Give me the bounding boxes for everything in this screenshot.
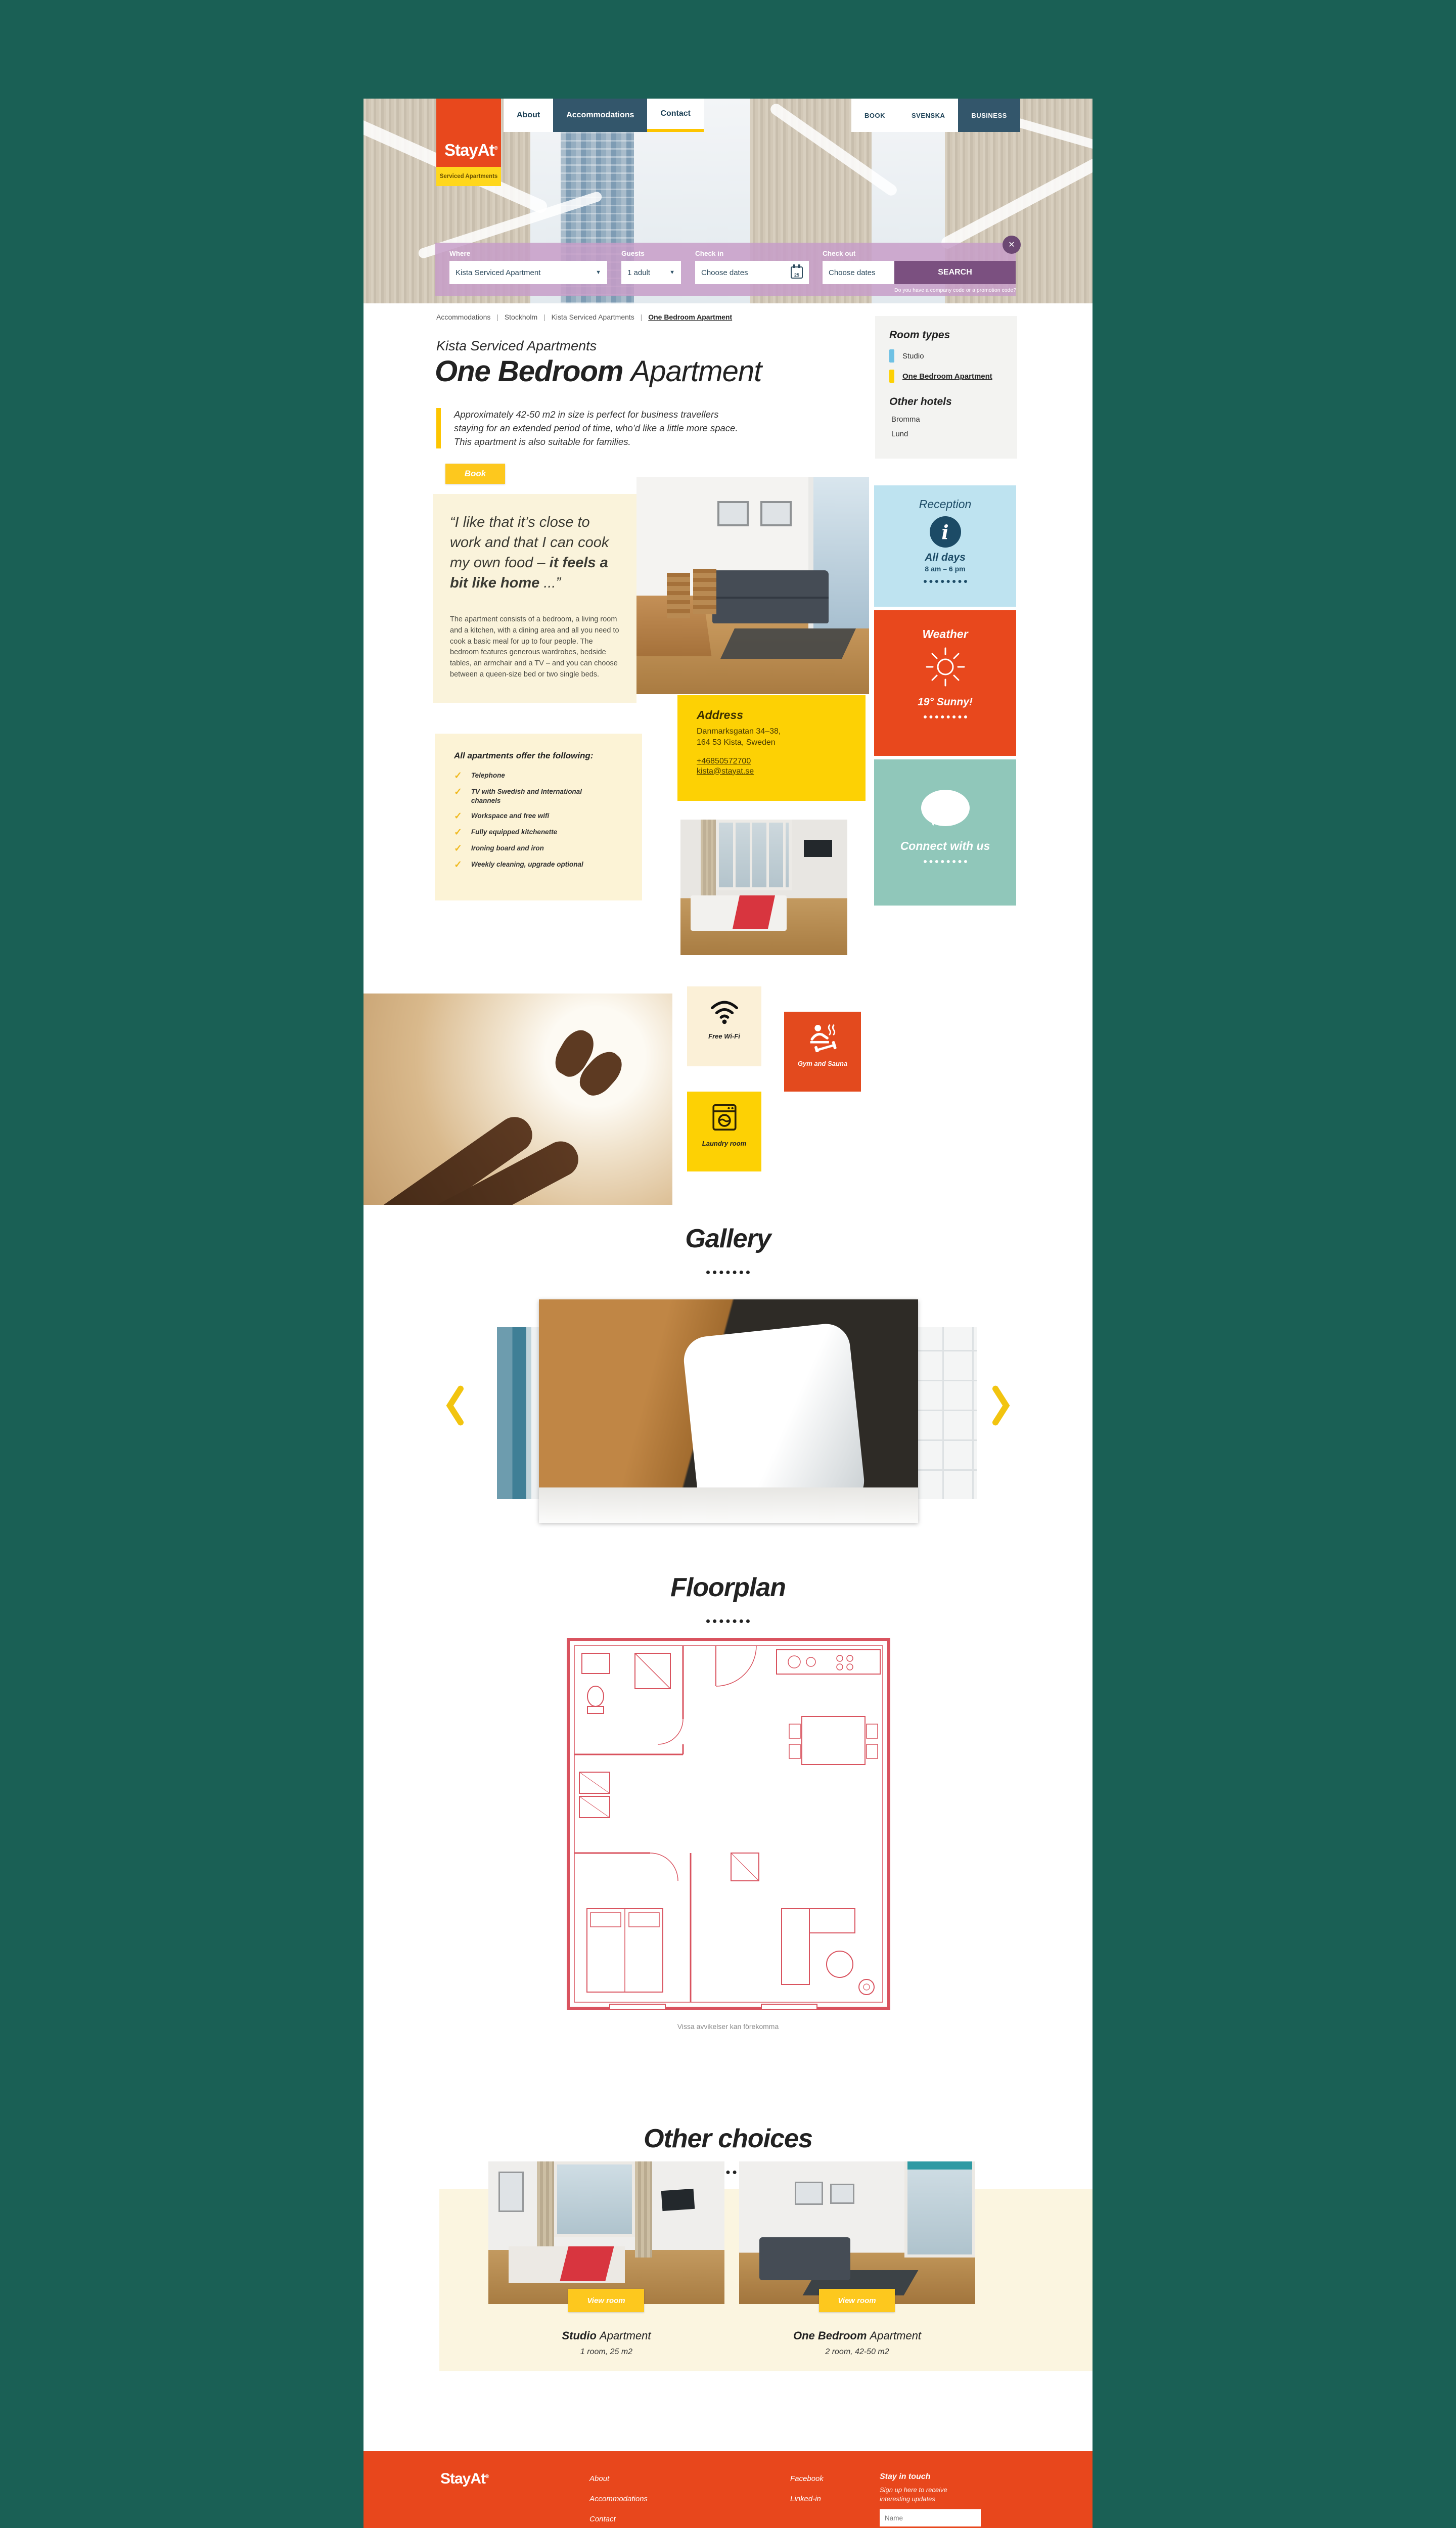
nav-tab-book[interactable]: BOOK	[851, 99, 898, 132]
footer-link-accommodations[interactable]: Accommodations	[589, 2495, 648, 2503]
room-types-panel: Room types Studio One Bedroom Apartment …	[875, 316, 1017, 459]
breadcrumb-separator: |	[641, 313, 643, 321]
guests-label: Guests	[621, 250, 645, 257]
stay-in-touch-heading: Stay in touch	[880, 2472, 986, 2481]
one-bedroom-marker-icon	[889, 370, 894, 383]
checkin-placeholder: Choose dates	[701, 268, 748, 277]
where-value: Kista Serviced Apartment	[456, 268, 540, 277]
footer: StayAt® About Accommodations Contact Boo…	[363, 2451, 1093, 2528]
window	[554, 2161, 635, 2237]
curtain	[701, 820, 716, 895]
carousel-next-icon[interactable]	[990, 1385, 1013, 1426]
amenities-checklist: All apartments offer the following: ✓Tel…	[435, 734, 642, 900]
logo[interactable]: StayAt®	[436, 99, 501, 167]
check-icon: ✓	[454, 787, 462, 805]
studio-card-info: 1 room, 25 m2	[488, 2348, 724, 2357]
tv	[804, 840, 832, 857]
studio-marker-icon	[889, 349, 894, 363]
bed-sheet	[539, 1487, 918, 1523]
hotel-kicker: Kista Serviced Apartments	[436, 338, 597, 354]
red-throw	[733, 895, 775, 929]
curtain	[635, 2161, 652, 2258]
email-link[interactable]: kista@stayat.se	[697, 767, 846, 776]
dotted-divider	[706, 1271, 750, 1274]
footer-link-about[interactable]: About	[589, 2474, 648, 2483]
checklist-item: ✓Ironing board and iron	[454, 844, 623, 853]
weather-status: 19° Sunny!	[874, 696, 1016, 708]
checklist-item: ✓Weekly cleaning, upgrade optional	[454, 860, 623, 870]
wall-art	[830, 2184, 854, 2204]
check-icon: ✓	[454, 844, 462, 853]
gym-label: Gym and Sauna	[784, 1060, 861, 1067]
sidebar-item-label: One Bedroom Apartment	[902, 372, 992, 381]
promo-code-link[interactable]: Do you have a company code or a promotio…	[894, 287, 1026, 293]
breadcrumb-separator: |	[543, 313, 545, 321]
sidebar-item-one-bedroom[interactable]: One Bedroom Apartment	[889, 370, 1003, 383]
sidebar-item-label: Studio	[902, 352, 924, 360]
chair	[693, 569, 716, 614]
stay-in-touch-sub: Sign up here to receive interesting upda…	[880, 2486, 968, 2503]
book-button[interactable]: Book	[445, 464, 505, 484]
relaxing-feet-photo	[363, 994, 672, 1205]
footer-link-linkedin[interactable]: Linked-in	[790, 2495, 824, 2503]
connect-title: Connect with us	[874, 839, 1016, 853]
tv	[661, 2189, 695, 2211]
laundry-label: Laundry room	[687, 1140, 761, 1147]
red-throw	[560, 2246, 614, 2281]
checklist-label: Weekly cleaning, upgrade optional	[471, 860, 583, 870]
testimonial-block: “I like that it’s close to work and that…	[433, 494, 636, 703]
other-choices-heading: Other choices	[363, 2124, 1093, 2154]
checklist-item: ✓TV with Swedish and International chann…	[454, 787, 623, 805]
chair	[667, 573, 690, 618]
sofa	[759, 2237, 850, 2280]
connect-card[interactable]: Connect with us	[874, 759, 1016, 906]
breadcrumb-current: One Bedroom Apartment	[648, 313, 732, 321]
newsletter-signup: Stay in touch Sign up here to receive in…	[880, 2472, 986, 2528]
address-card: Address Danmarksgatan 34–38, 164 53 Kist…	[677, 695, 866, 801]
sofa	[712, 570, 829, 623]
name-field[interactable]	[880, 2509, 981, 2526]
desktop-background: StayAt® Serviced Apartments About Accomm…	[0, 0, 1456, 2528]
gallery-heading: Gallery	[363, 1224, 1093, 1254]
room-types-heading: Room types	[889, 329, 1003, 341]
breadcrumb-kista[interactable]: Kista Serviced Apartments	[552, 313, 634, 321]
window-blind	[907, 2161, 972, 2170]
studio-card-title: Studio Apartment	[488, 2329, 724, 2342]
floorplan-heading: Floorplan	[363, 1572, 1093, 1603]
gym-sauna-card: Gym and Sauna	[784, 1012, 861, 1092]
calendar-icon: 25	[791, 266, 803, 279]
floorplan-drawing	[564, 1636, 893, 2012]
nav-tab-accommodations[interactable]: Accommodations	[553, 99, 647, 132]
close-icon[interactable]: ✕	[1003, 236, 1021, 254]
apartment-description: The apartment consists of a bedroom, a l…	[450, 614, 619, 681]
checklist-label: Telephone	[471, 771, 505, 781]
where-select[interactable]: Kista Serviced Apartment ▼	[449, 261, 607, 284]
mirror	[498, 2172, 524, 2212]
checklist-label: Ironing board and iron	[471, 844, 544, 853]
main-nav: About Accommodations Contact	[504, 99, 704, 132]
dotted-divider	[924, 580, 967, 583]
sidebar-item-studio[interactable]: Studio	[889, 349, 1003, 363]
footer-social: Facebook Linked-in	[790, 2474, 824, 2503]
dotted-divider	[706, 1619, 750, 1623]
one-bedroom-card-info: 2 room, 42-50 m2	[739, 2348, 975, 2357]
view-room-button-studio[interactable]: View room	[568, 2289, 644, 2312]
sidebar-item-lund[interactable]: Lund	[889, 430, 1003, 438]
wall-art	[795, 2182, 823, 2205]
reception-hours: 8 am – 6 pm	[874, 565, 1016, 573]
checklist-item: ✓Fully equipped kitchenette	[454, 828, 623, 837]
footer-logo[interactable]: StayAt®	[440, 2470, 488, 2488]
one-bedroom-apartment-photo[interactable]	[739, 2161, 975, 2304]
breadcrumb-accommodations[interactable]: Accommodations	[436, 313, 490, 321]
address-links: +46850572700 kista@stayat.se	[697, 757, 846, 776]
checkin-field[interactable]: Choose dates 25	[695, 261, 809, 284]
wifi-icon	[708, 998, 741, 1025]
rug	[720, 628, 856, 659]
checkin-label: Check in	[695, 250, 723, 257]
registered-mark: ®	[494, 146, 497, 151]
checklist-item: ✓Telephone	[454, 771, 623, 781]
sidebar-item-bromma[interactable]: Bromma	[889, 415, 1003, 424]
testimonial-quote: “I like that it’s close to work and that…	[450, 512, 619, 593]
reception-card: Reception i All days 8 am – 6 pm	[874, 485, 1016, 607]
gym-sauna-icon	[807, 1023, 838, 1052]
wall-art	[760, 501, 792, 526]
page-title: One Bedroom Apartment	[435, 354, 761, 388]
check-icon: ✓	[454, 860, 462, 870]
studio-apartment-photo[interactable]	[488, 2161, 724, 2304]
check-icon: ✓	[454, 828, 462, 837]
wifi-label: Free Wi-Fi	[687, 1032, 761, 1040]
floorplan-caption: Vissa avvikelser kan förekomma	[363, 2022, 1093, 2030]
weather-title: Weather	[874, 627, 1016, 641]
carousel-prev-icon[interactable]	[443, 1385, 466, 1426]
address-street: Danmarksgatan 34–38,	[697, 726, 846, 737]
gallery-main-image[interactable]	[539, 1299, 918, 1523]
check-icon: ✓	[454, 811, 462, 821]
check-icon: ✓	[454, 771, 462, 781]
guests-value: 1 adult	[627, 268, 650, 277]
title-bold: One Bedroom	[435, 355, 623, 388]
curtain	[537, 2161, 554, 2258]
checklist-label: Workspace and free wifi	[471, 811, 549, 821]
free-wifi-card: Free Wi-Fi	[687, 986, 761, 1066]
weather-card: Weather 19° Sunny!	[874, 610, 1016, 756]
chevron-down-icon: ▼	[596, 269, 601, 276]
phone-link[interactable]: +46850572700	[697, 757, 846, 766]
footer-link-contact[interactable]: Contact	[589, 2515, 648, 2523]
registered-mark: ®	[485, 2474, 488, 2479]
reception-title: Reception	[874, 498, 1016, 511]
checklist-item: ✓Workspace and free wifi	[454, 811, 623, 821]
other-hotels-heading: Other hotels	[889, 396, 1003, 408]
chevron-down-icon: ▼	[669, 269, 675, 276]
speech-bubble-icon	[921, 790, 970, 826]
address-heading: Address	[697, 708, 846, 722]
where-label: Where	[449, 250, 470, 257]
checkout-placeholder: Choose dates	[829, 268, 876, 277]
checklist-label: Fully equipped kitchenette	[471, 828, 557, 837]
window	[716, 820, 792, 890]
info-icon: i	[930, 516, 961, 548]
logo-tagline: Serviced Apartments	[436, 167, 501, 186]
nav-tab-svenska[interactable]: SVENSKA	[898, 99, 958, 132]
utility-nav: BOOK SVENSKA BUSINESS	[851, 99, 1020, 132]
nav-tab-about[interactable]: About	[504, 99, 553, 132]
sun-icon	[924, 645, 967, 689]
breadcrumb: Accommodations | Stockholm | Kista Servi…	[436, 313, 732, 321]
dotted-divider	[924, 860, 967, 863]
bedroom-photo	[680, 820, 847, 955]
footer-link-facebook[interactable]: Facebook	[790, 2474, 824, 2483]
dotted-divider	[924, 715, 967, 718]
checklist-label: TV with Swedish and International channe…	[471, 787, 598, 805]
breadcrumb-stockholm[interactable]: Stockholm	[505, 313, 537, 321]
guests-select[interactable]: 1 adult ▼	[621, 261, 681, 284]
stayat-page: StayAt® Serviced Apartments About Accomm…	[363, 99, 1093, 2528]
nav-tab-contact[interactable]: Contact	[647, 99, 704, 132]
footer-links: About Accommodations Contact Book Busine…	[589, 2474, 648, 2528]
intro-paragraph: Approximately 42-50 m2 in size is perfec…	[436, 408, 745, 448]
window	[904, 2161, 975, 2258]
search-button[interactable]: SEARCH	[894, 261, 1016, 284]
title-light: Apartment	[631, 355, 762, 388]
address-city: 164 53 Kista, Sweden	[697, 737, 846, 748]
laundry-card: Laundry room	[687, 1092, 761, 1171]
booking-search-panel: ✕ Where Kista Serviced Apartment ▼ Guest…	[435, 243, 1016, 296]
wall-art	[717, 501, 749, 526]
washing-machine-icon	[710, 1103, 739, 1132]
checkout-label: Check out	[823, 250, 855, 257]
living-room-photo	[636, 477, 869, 694]
reception-days: All days	[874, 552, 1016, 564]
view-room-button-one-bedroom[interactable]: View room	[819, 2289, 895, 2312]
breadcrumb-separator: |	[496, 313, 498, 321]
nav-tab-business[interactable]: BUSINESS	[958, 99, 1020, 132]
one-bedroom-card-title: One Bedroom Apartment	[739, 2329, 975, 2342]
logo-text: StayAt®	[444, 141, 497, 160]
checklist-heading: All apartments offer the following:	[454, 751, 623, 761]
